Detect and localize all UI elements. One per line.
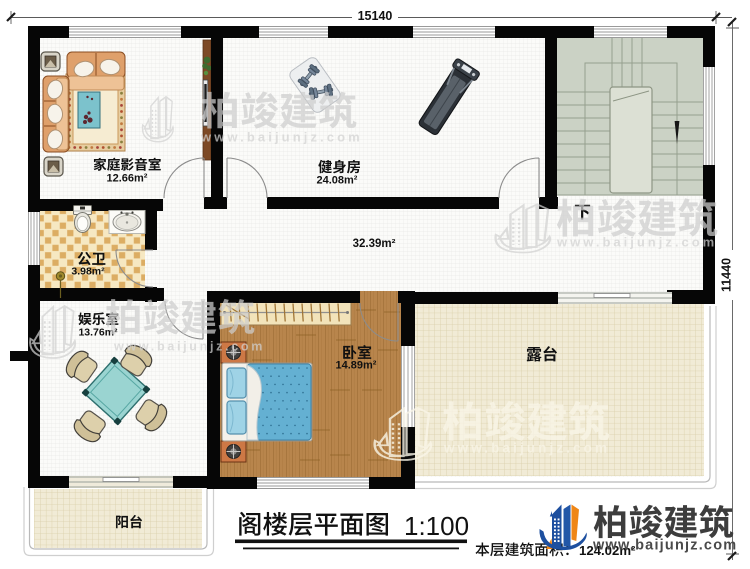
svg-text:24.08m²: 24.08m²	[317, 175, 358, 187]
svg-text:www.baijunjz.com: www.baijunjz.com	[200, 130, 363, 145]
svg-text:www.baijunjz.com: www.baijunjz.com	[443, 441, 610, 456]
svg-text:www.baijunjz.com: www.baijunjz.com	[113, 340, 265, 354]
svg-text:12.66m²: 12.66m²	[107, 173, 148, 185]
svg-text:32.39m²: 32.39m²	[353, 238, 396, 250]
svg-text:14.89m²: 14.89m²	[336, 360, 377, 372]
svg-text:www.baijunjz.com: www.baijunjz.com	[592, 538, 737, 554]
svg-text:15140: 15140	[358, 9, 393, 23]
svg-text:3.98m²: 3.98m²	[71, 266, 105, 278]
svg-text:1:100: 1:100	[404, 511, 469, 541]
svg-text:www.baijunjz.com: www.baijunjz.com	[556, 235, 717, 250]
svg-text:11440: 11440	[720, 258, 734, 292]
